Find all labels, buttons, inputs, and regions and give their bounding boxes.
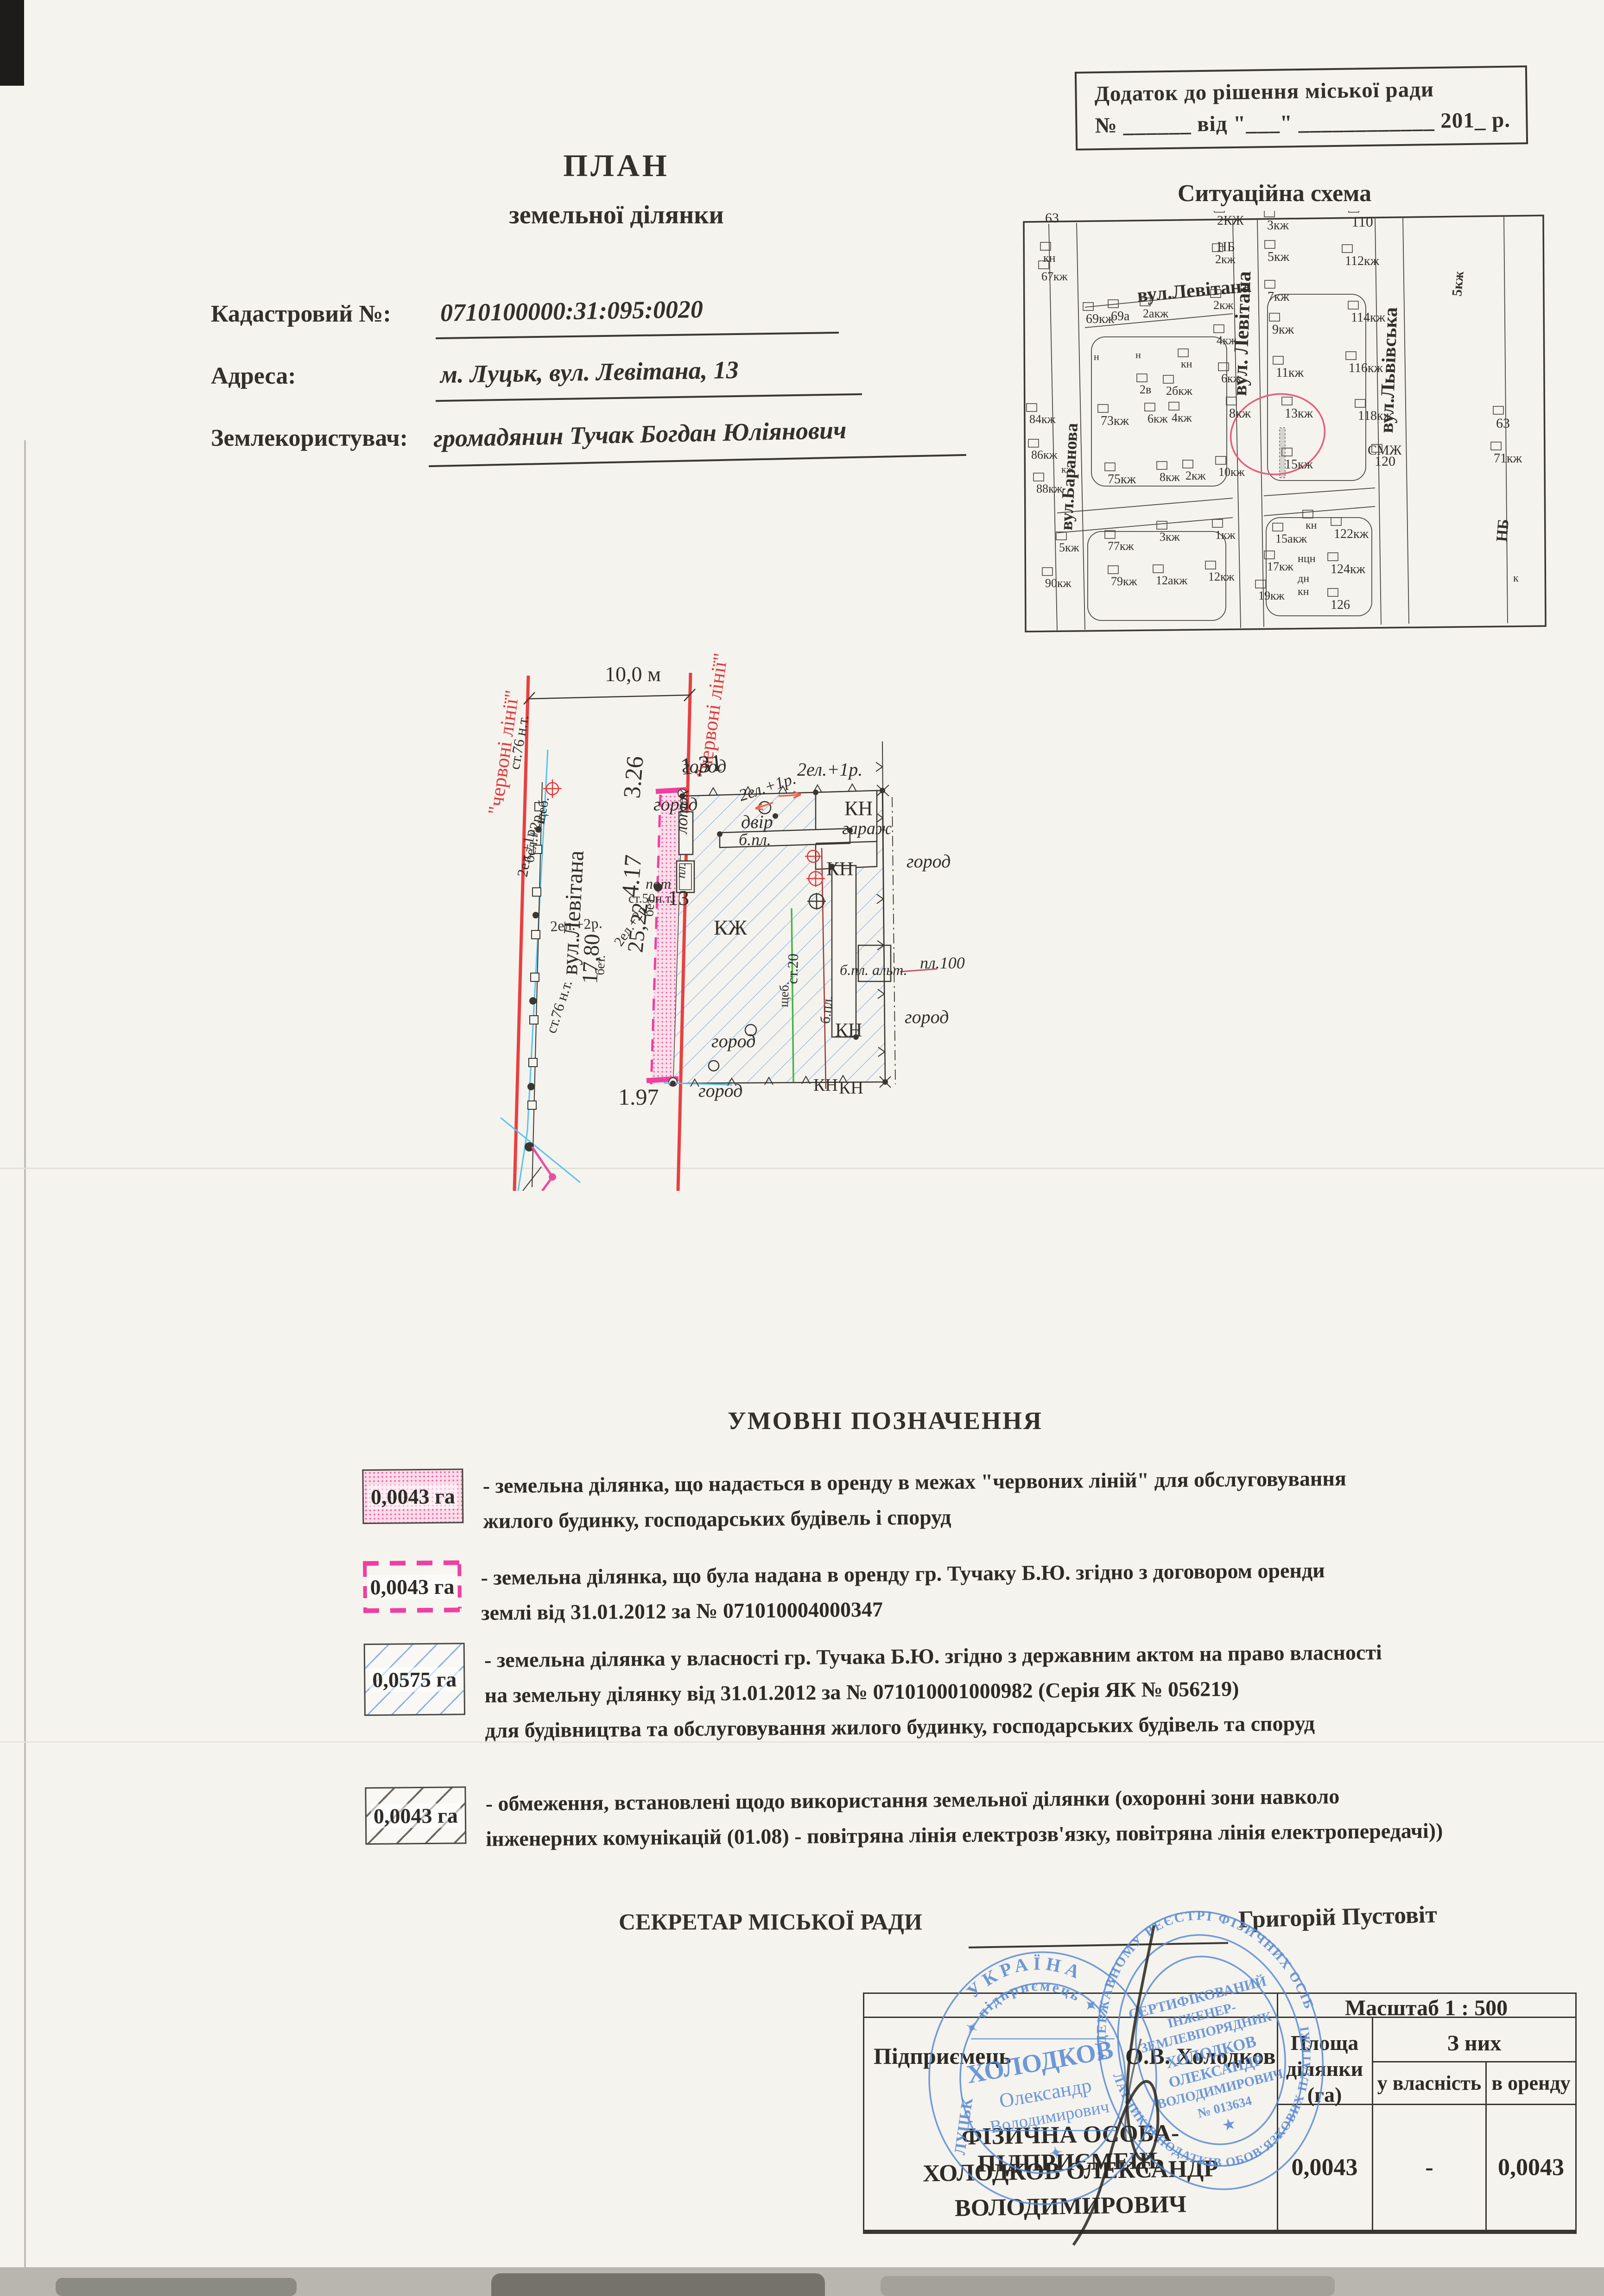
map-house-square [1178,349,1188,357]
survey-drawing: 10,0 м"червоні лінії""червоні лінії"ст.7… [473,649,1122,1191]
map-house-label: 2акж [1143,307,1169,320]
legend-area-value: 0,0043 га [371,1803,461,1828]
drawing-label: 1.97 [618,1084,659,1110]
map-house-label: 84кж [1029,412,1056,426]
legend-area-value: 0,0043 га [368,1484,458,1509]
map-house-label: 11кж [1276,366,1304,380]
map-house-label: 2кж [1186,469,1206,482]
drawing-label: КН [839,1078,863,1098]
drawing-label: 3.26 [619,755,649,799]
drawing-label: 13 [668,886,689,910]
legend-item: 0,0575 га- земельна ділянка у власності … [364,1633,1551,1749]
stamp1-city: ЛУЦЬК [951,2097,976,2156]
map-house-label: 63 [1496,416,1510,431]
map-house-label: 4кж [1217,334,1237,347]
drawing-label: 2ел.+2р. [550,914,602,935]
drawing-label: двір [741,811,773,832]
drawing-label: б.пл. [818,994,836,1024]
map-house-label: 5кж [1059,541,1080,554]
stamp1-surname: ХОЛОДКОВ [964,2035,1115,2089]
map-house-square [1145,403,1155,411]
map-house-label: 71кж [1494,451,1522,466]
drawing-label: пл. [674,863,689,879]
map-house-label: 114кж [1351,310,1386,325]
scan-bottom-blotch-dark [491,2273,825,2296]
map-house-square [1027,404,1037,411]
legend-symbol-pink-dotted: 0,0043 га [362,1468,463,1524]
table-col-ofthem: З них [1373,2030,1575,2056]
map-house-label: 2кж [1213,298,1234,312]
legend-symbol-black-hatch: 0,0043 га [365,1786,466,1845]
doc-title: ПЛАН [482,147,751,184]
legend-title: УМОВНІ ПОЗНАЧЕННЯ [640,1406,1131,1435]
map-house-label: 6кж [1148,412,1168,425]
map-house-label: 110 [1351,213,1373,230]
map-house-square [1183,460,1193,468]
map-house-square [1153,565,1163,573]
map-house-label: 2бкж [1166,384,1193,398]
scan-bottom-blotch-right [881,2276,1335,2296]
legend-symbol-blue-hatch: 0,0575 га [364,1643,465,1716]
legend-item-text: - земельна ділянка, що була надана в оре… [481,1553,1325,1631]
legend-area-value: 0,0575 га [369,1667,459,1692]
map-house-label: 67кж [1041,270,1068,283]
table-val-rent: 0,0043 [1487,2154,1575,2181]
drawing-label: город [907,851,951,872]
map-house-label: 86кж [1031,448,1058,462]
map-house-square [1108,566,1118,574]
map-house-label: 8кж [1160,470,1180,484]
drawing-label: КН [844,797,873,820]
map-house-label: 6кж [1221,372,1242,385]
field-label-cadastral: Кадастровий №: [211,300,391,328]
map-house-labels: 63кн67кж2КЖ3кж110НБ2кж5кж112кж69кж69а2ак… [1027,211,1522,612]
map-house-label: 118кж [1358,409,1393,423]
map-house-label: 2в [1140,383,1151,396]
map-house-label: к [1513,572,1519,584]
map-house-label: 1кж [1215,528,1236,542]
appendix-line2: № ______ від "___" ____________ 201_ р. [1095,108,1512,139]
map-house-square [1205,561,1216,569]
map-house-square [1265,240,1275,248]
map-house-label: 12кж [1208,570,1235,583]
map-house-square [1348,301,1358,309]
map-house-label: дн [1298,573,1309,585]
legend-item-text: - обмеження, встановлені щодо використан… [485,1778,1443,1857]
drawing-label: город [711,1031,755,1051]
dimension-line [524,689,695,704]
drawing-label: ст.20 [784,953,801,984]
map-house-square [1212,519,1223,527]
legend-area-value: 0,0043 га [367,1574,457,1600]
map-house-square [1491,442,1501,450]
map-house-label: 112кж [1345,254,1380,268]
appendix-box: Додаток до рішення міської ради № ______… [1075,65,1528,151]
legend-item-line: жилого будинку, господарських будівель і… [483,1496,1347,1539]
map-house-label: 75кж [1108,472,1136,487]
scan-corner-artifact [0,0,24,86]
map-house-label: 15кж [1285,457,1313,472]
map-street-label: НБ [1493,519,1512,543]
legend-item-text: - земельна ділянка, що надається в оренд… [482,1461,1346,1539]
map-house-square [1265,280,1275,288]
map-house-square [1098,405,1108,412]
map-house-label: н [1135,349,1141,361]
map-house-square [1331,518,1341,525]
map-house-label: 2КЖ [1217,214,1244,228]
map-house-square [1157,462,1167,469]
map-house-label: 15акж [1275,532,1307,545]
map-house-label: 90кж [1045,576,1072,590]
map-house-label: 5кж [1268,250,1290,264]
drawing-label: пот [646,875,671,892]
drawing-label: город [698,1080,742,1101]
map-house-square [1255,580,1266,588]
drawing-label: гараж [842,819,892,838]
field-value-cadastral: 0710100000:31:095:0020 [440,295,704,327]
drawing-label: пл.100 [920,954,965,972]
legend-item-line: землі від 31.01.2012 за № 07101000400034… [481,1588,1325,1631]
stamp2-star: ★ [1221,2116,1237,2134]
map-house-label: 3кж [1160,530,1180,544]
scanned-land-plan-page: Додаток до рішення міської ради № ______… [0,0,1604,2296]
map-house-label: 120 [1375,454,1395,469]
map-house-square [1214,325,1224,333]
map-house-label: 63 [1045,211,1059,226]
map-house-square [1355,399,1365,407]
map-house-square [1169,402,1179,410]
map-house-square [1273,356,1283,364]
map-house-label: 10кж [1218,465,1245,479]
map-house-square [1342,245,1352,253]
legend-item-line: - земельна ділянка, що була надана в оре… [481,1553,1325,1595]
drawing-label: б.пл. альт. [840,961,907,978]
legend-item-text: - земельна ділянка у власності гр. Тучак… [484,1635,1383,1748]
map-house-label: 8кж [1229,406,1251,421]
drawing-label: 2ел.+1р. [797,759,862,780]
map-street-label: 5кж [1449,271,1467,297]
map-house-label: 124кж [1331,562,1366,576]
map-house-label: 4кж [1172,411,1192,424]
map-house-square [1214,211,1224,212]
legend-symbol-pink-dashed: 0,0043 га [363,1560,462,1613]
field-value-landuser: громадянин Тучак Богдан Юліянович [433,416,847,453]
appendix-line1: Додаток до рішення міської ради [1094,76,1512,107]
drawing-label: КН [826,859,853,880]
map-house-label: 69кж [1086,312,1115,326]
map-house-label: кн [1181,358,1192,370]
map-house-label: 77кж [1108,539,1135,553]
map-house-label: 116кж [1349,361,1383,375]
map-house-square [1282,397,1292,405]
field-label-landuser: Землекористувач: [211,424,408,452]
drawing-label: лоток [672,789,692,835]
map-house-label: 126 [1331,598,1350,612]
map-house-label: н [1094,351,1099,362]
situation-map: вул.Барановавул.Левітанавул. Левітанавул… [1022,211,1550,635]
legend: 0,0043 га- земельна ділянка, що надаєтьс… [362,1459,1552,1858]
map-house-square [1105,463,1115,471]
drawing-label: КН [835,1020,862,1041]
drawing-label: щеб. [777,981,792,1007]
map-house-label: кн [1043,251,1056,265]
map-house-square [1493,406,1503,414]
map-title: Ситуаційна схема [1131,180,1418,207]
map-house-label: 17кж [1267,560,1294,573]
map-house-square [1028,439,1039,447]
map-house-label: 12акж [1156,574,1188,587]
map-house-square [1137,374,1147,382]
legend-item-line: - земельна ділянка, що надається в оренд… [482,1461,1346,1504]
map-house-label: 3кж [1267,218,1289,233]
table-col-rent: в оренду [1487,2071,1575,2095]
map-house-label: 79кж [1111,575,1138,588]
legend-item: 0,0043 га- обмеження, встановлені щодо в… [365,1777,1552,1858]
drawing-label: КЖ [714,916,748,939]
stamps-overlay: УКРАЇНА ✦ підприємець ✦ ХОЛОДКОВ Олексан… [857,1900,1395,2275]
drawing-label: б.пл. [739,830,771,849]
scan-bottom-blotch-mid [56,2278,297,2296]
map-house-square [1042,568,1052,576]
drawing-label: 10,0 м [605,662,661,686]
drawing-label: КН [813,1075,838,1095]
map-house-square [1216,456,1226,464]
map-house-label: 9кж [1272,323,1294,337]
drawing-label: щеб. [532,796,552,825]
map-house-label: 2кж [1215,253,1236,266]
drawing-label: город [682,756,726,777]
map-house-square [1163,375,1173,383]
legend-item-line: для будівництва та обслуговування жилого… [485,1705,1382,1748]
map-house-label: кж [1061,463,1074,475]
map-house-label: нцн [1298,553,1316,565]
map-house-square [1346,352,1356,360]
drawing-label: ст.50н.т. [628,892,673,906]
map-house-label: 19кж [1258,589,1285,602]
legend-item: 0,0043 га- земельна ділянка, що надаєтьс… [362,1459,1549,1540]
field-label-address: Адреса: [211,362,296,390]
map-house-square [1328,553,1338,561]
field-underline-landuser [429,454,966,467]
map-house-square [1033,473,1044,481]
map-house-label: 7кж [1268,290,1290,304]
map-house-square [1349,211,1359,212]
map-house-square [1328,588,1338,596]
map-house-square [1269,313,1280,321]
map-house-label: 88кж [1036,482,1063,495]
drawing-label: город [905,1006,949,1027]
map-street-label: вул.Баранова [1057,423,1082,531]
map-house-square [1264,211,1274,217]
doc-subtitle: земельної ділянки [436,200,797,230]
map-house-square [1273,523,1283,531]
map-house-label: кн [1298,586,1309,598]
legend-item: 0,0043 га- земельна ділянка, що була над… [363,1551,1550,1632]
map-house-square [1226,397,1236,405]
drawing-label: 17,80 [577,933,605,985]
scan-left-edge-line [24,440,26,2275]
field-underline-cadastral [436,332,839,339]
svg-text:✦: ✦ [1048,2144,1064,2163]
map-house-label: 69а [1111,309,1130,323]
field-underline-address [436,393,862,402]
map-house-label: 13кж [1285,406,1313,421]
map-house-square [1157,521,1167,529]
map-house-label: 73кж [1101,414,1129,428]
drawing-label: ст.76 н.т. [542,978,575,1035]
map-house-label: 122кж [1334,527,1369,541]
field-value-address: м. Луцьк, вул. Левітана, 13 [440,355,739,389]
map-house-label: кн [1306,519,1317,531]
